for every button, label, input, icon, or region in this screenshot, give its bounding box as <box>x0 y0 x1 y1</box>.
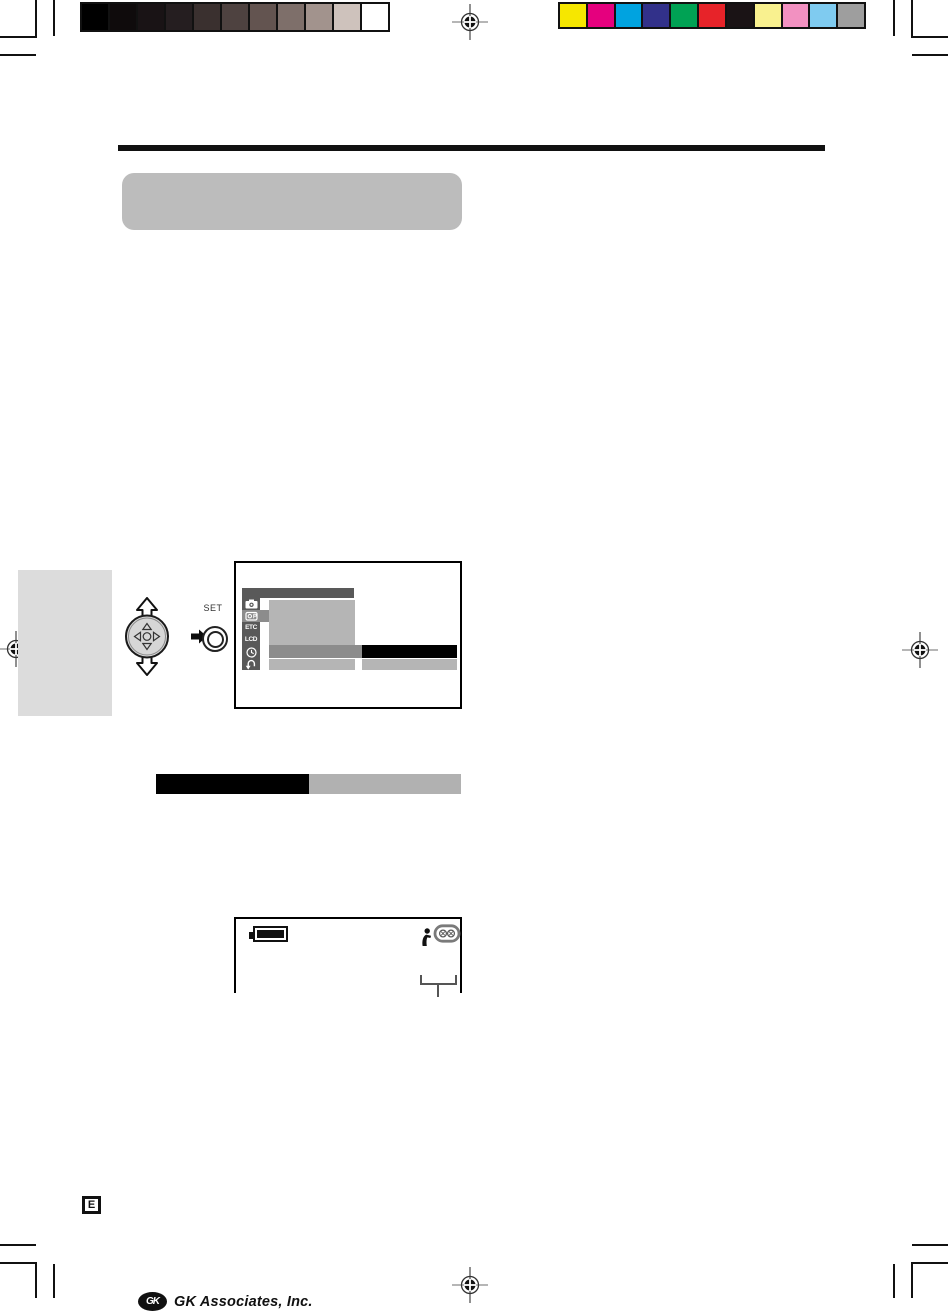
color-swatch <box>755 4 781 27</box>
lcd-tab-label: LCD <box>245 637 257 644</box>
menu-screen-illustration: ETC LCD <box>234 561 462 709</box>
color-swatch <box>82 4 108 30</box>
camera-playback-icon <box>242 610 260 622</box>
color-swatch <box>166 4 192 30</box>
lcd-tab: LCD <box>242 634 260 646</box>
color-swatch <box>306 4 332 30</box>
color-swatch <box>194 4 220 30</box>
color-swatch <box>278 4 304 30</box>
callout-bracket-stem <box>437 985 439 997</box>
menu-selected-value-row <box>362 645 457 658</box>
set-button-inner-ring <box>207 631 224 648</box>
cassette-icon <box>433 923 461 944</box>
callout-bracket <box>420 975 457 985</box>
camera-icon <box>242 598 260 610</box>
battery-charge-level <box>257 930 284 938</box>
menu-bottom-row-left <box>269 659 355 670</box>
registration-mark-right <box>902 632 938 668</box>
publisher-name: GK Associates, Inc. <box>174 1294 313 1310</box>
menu-title-bar <box>242 588 354 598</box>
set-button <box>202 626 228 652</box>
color-swatch <box>138 4 164 30</box>
page-top-rule <box>118 145 825 151</box>
dpad-illustration <box>124 597 170 676</box>
color-swatch <box>222 4 248 30</box>
option-bar-unselected-segment <box>309 774 461 794</box>
grayscale-calibration-bar <box>80 2 390 32</box>
return-arrow-icon <box>242 658 260 670</box>
color-swatch <box>110 4 136 30</box>
clock-icon <box>242 646 260 658</box>
color-swatch <box>699 4 725 27</box>
color-swatch <box>616 4 642 27</box>
section-header-block <box>122 173 462 230</box>
color-swatch <box>810 4 836 27</box>
status-screen-illustration <box>234 917 462 993</box>
color-swatch <box>560 4 586 27</box>
person-icon <box>418 928 433 947</box>
menu-selected-item-row <box>269 645 362 658</box>
publisher-logo-mark: GK <box>138 1292 167 1311</box>
color-swatch <box>334 4 360 30</box>
etc-tab-label: ETC <box>245 625 257 632</box>
side-tab-block <box>18 570 112 716</box>
registration-mark-bottom <box>452 1267 488 1303</box>
color-swatch <box>643 4 669 27</box>
scanned-manual-page: SET ETC LCD <box>0 0 948 1313</box>
color-swatch <box>250 4 276 30</box>
color-swatch <box>362 4 388 30</box>
color-swatch <box>671 4 697 27</box>
option-bar-selected-segment <box>156 774 309 794</box>
menu-item-list-area <box>269 600 355 645</box>
color-swatch <box>838 4 864 27</box>
etc-tab: ETC <box>242 622 260 634</box>
color-swatch <box>783 4 809 27</box>
menu-bottom-row-right <box>362 659 457 670</box>
color-swatch <box>588 4 614 27</box>
edition-badge: E <box>82 1196 101 1214</box>
color-calibration-bar <box>558 2 866 29</box>
color-swatch <box>727 4 753 27</box>
set-button-label: SET <box>200 603 226 613</box>
registration-mark-top <box>452 4 488 40</box>
